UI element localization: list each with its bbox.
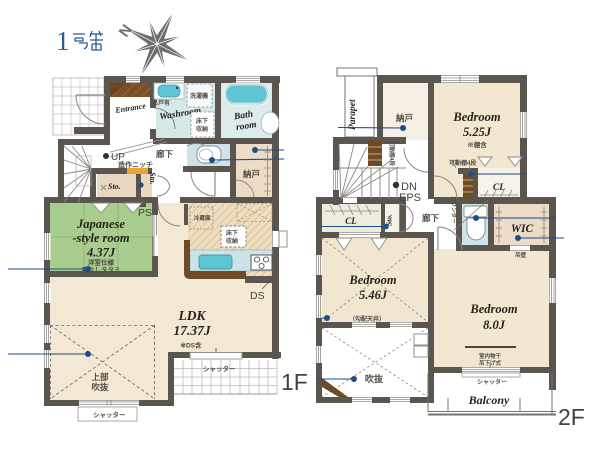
svg-text:1: 1: [56, 26, 70, 56]
svg-text:収納: 収納: [196, 125, 208, 133]
svg-text:Bedroom: Bedroom: [452, 110, 501, 124]
svg-text:Bedroom: Bedroom: [469, 302, 518, 316]
svg-text:※棚含: ※棚含: [467, 140, 487, 149]
svg-text:※DS含: ※DS含: [181, 341, 202, 350]
svg-text:5.25J: 5.25J: [463, 125, 492, 139]
svg-text:-style room: -style room: [72, 231, 130, 245]
svg-text:吹抜: 吹抜: [365, 373, 384, 384]
svg-text:Sto.: Sto.: [148, 172, 157, 185]
svg-text:1F: 1F: [281, 369, 308, 395]
svg-text:2F: 2F: [558, 404, 585, 430]
svg-text:洋室仕様: 洋室仕様: [88, 258, 115, 267]
svg-text:シャッター: シャッター: [203, 364, 236, 373]
svg-text:納戸: 納戸: [243, 169, 261, 179]
svg-text:床下: 床下: [196, 117, 208, 125]
svg-text:4.37J: 4.37J: [86, 246, 116, 260]
svg-text:WIC: WIC: [511, 223, 534, 235]
svg-text:（勾配天井）: （勾配天井）: [349, 315, 385, 323]
svg-text:EPS: EPS: [399, 192, 421, 204]
svg-text:17.37J: 17.37J: [173, 323, 211, 338]
svg-text:吹抜: 吹抜: [91, 382, 109, 392]
svg-text:DS: DS: [250, 290, 265, 302]
svg-text:シャッター: シャッター: [93, 410, 126, 419]
svg-text:LDK: LDK: [178, 308, 207, 323]
svg-text:廊下: 廊下: [156, 149, 174, 159]
svg-text:Sto.: Sto.: [108, 182, 121, 191]
svg-text:造作ニッチ: 造作ニッチ: [118, 160, 153, 169]
svg-text:床下: 床下: [226, 229, 238, 237]
svg-text:吊壁: 吊壁: [515, 251, 527, 259]
svg-text:カウンター: カウンター: [450, 196, 458, 224]
svg-text:Japanese: Japanese: [76, 217, 125, 231]
svg-text:8.0J: 8.0J: [483, 318, 506, 332]
svg-text:可動棚4段: 可動棚4段: [388, 141, 396, 167]
svg-text:吊戸有: 吊戸有: [152, 99, 170, 107]
svg-text:室内物干: 室内物干: [479, 352, 502, 360]
svg-text:冷蔵庫: 冷蔵庫: [194, 214, 211, 222]
svg-text:Parapet: Parapet: [348, 99, 358, 130]
svg-text:納戸: 納戸: [396, 113, 414, 123]
svg-text:洗濯機: 洗濯機: [190, 92, 208, 100]
svg-text:上部: 上部: [91, 372, 109, 382]
svg-text:5.46J: 5.46J: [359, 288, 388, 302]
svg-text:可動棚4段: 可動棚4段: [449, 159, 476, 167]
svg-text:Balcony: Balcony: [468, 393, 510, 407]
svg-text:PS: PS: [138, 207, 152, 219]
svg-text:CL: CL: [345, 216, 357, 226]
svg-text:収納: 収納: [226, 237, 238, 245]
svg-text:シャッター: シャッター: [477, 378, 507, 386]
svg-text:廊下: 廊下: [422, 213, 440, 223]
svg-text:Bedroom: Bedroom: [348, 273, 397, 287]
